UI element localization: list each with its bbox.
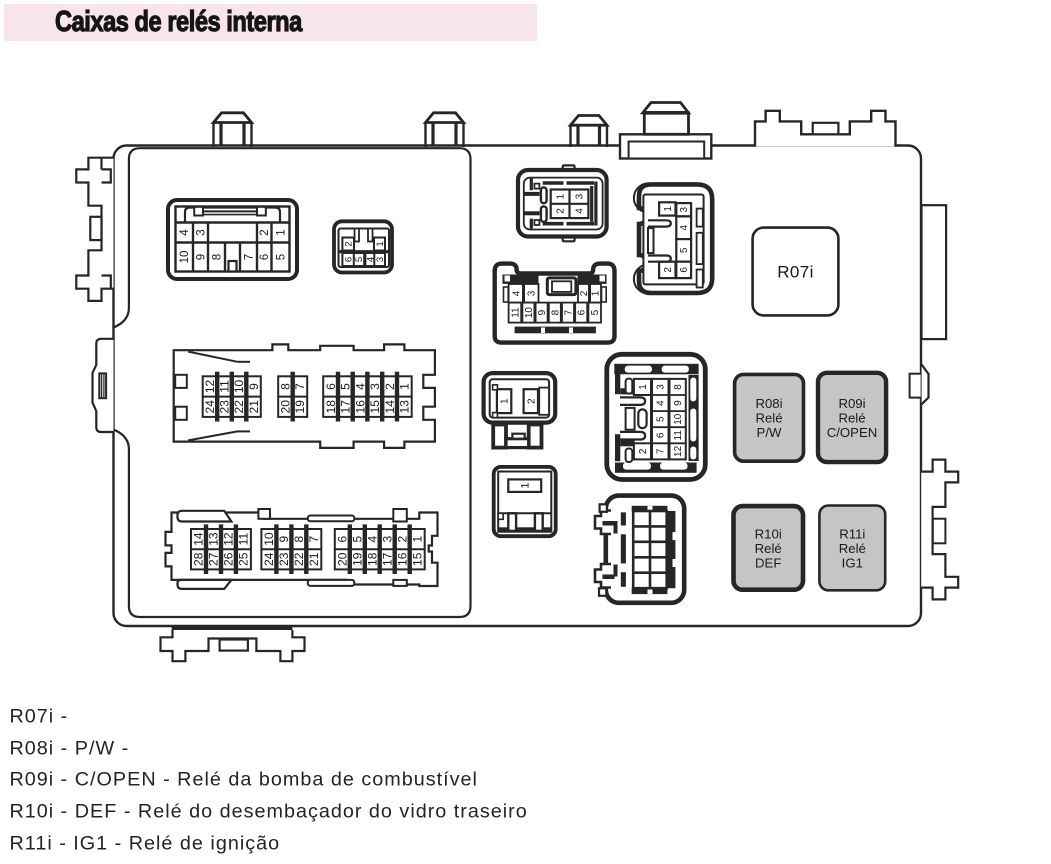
svg-text:6: 6 <box>336 535 350 542</box>
svg-text:7: 7 <box>656 448 667 454</box>
svg-text:24: 24 <box>262 552 276 566</box>
svg-text:2: 2 <box>383 383 397 390</box>
svg-text:1: 1 <box>375 241 386 246</box>
svg-text:6: 6 <box>656 432 667 438</box>
svg-text:16: 16 <box>395 552 409 566</box>
svg-text:26: 26 <box>222 552 236 566</box>
svg-text:3: 3 <box>375 257 386 262</box>
svg-text:9: 9 <box>247 383 261 390</box>
svg-text:5: 5 <box>339 383 353 390</box>
svg-text:23: 23 <box>218 400 232 414</box>
svg-text:2: 2 <box>663 267 674 273</box>
svg-text:Relé: Relé <box>838 410 865 425</box>
svg-text:6: 6 <box>324 383 338 390</box>
svg-text:3: 3 <box>380 535 394 542</box>
svg-text:9: 9 <box>537 309 548 315</box>
svg-text:11: 11 <box>237 533 251 546</box>
svg-text:1: 1 <box>276 229 288 235</box>
svg-text:1: 1 <box>556 193 567 199</box>
svg-text:C/OPEN: C/OPEN <box>827 425 878 440</box>
svg-text:DEF: DEF <box>755 555 781 570</box>
svg-text:1: 1 <box>410 535 424 542</box>
svg-text:19: 19 <box>351 552 365 566</box>
svg-text:IG1: IG1 <box>842 555 863 570</box>
svg-text:R08i - P/W -: R08i - P/W - <box>10 737 130 759</box>
svg-text:19: 19 <box>293 400 307 414</box>
svg-text:1: 1 <box>591 290 602 296</box>
svg-text:R11i: R11i <box>839 527 865 542</box>
svg-text:4: 4 <box>365 535 379 542</box>
svg-text:16: 16 <box>353 400 367 414</box>
svg-text:9: 9 <box>196 254 208 260</box>
svg-text:1: 1 <box>520 483 532 489</box>
svg-text:2: 2 <box>395 535 409 542</box>
svg-text:12: 12 <box>673 445 684 457</box>
svg-text:R09i: R09i <box>838 396 865 411</box>
svg-text:4: 4 <box>575 208 586 214</box>
svg-text:R10i - DEF - Relé do desembaça: R10i - DEF - Relé do desembaçador do vid… <box>10 800 528 822</box>
svg-text:18: 18 <box>324 400 338 414</box>
svg-text:25: 25 <box>237 552 251 566</box>
svg-text:12: 12 <box>203 380 217 394</box>
svg-text:3: 3 <box>196 229 208 235</box>
svg-text:7: 7 <box>307 535 321 542</box>
svg-text:10: 10 <box>673 413 684 425</box>
svg-text:6: 6 <box>259 254 271 260</box>
svg-text:R09i - C/OPEN - Relé da bomba: R09i - C/OPEN - Relé da bomba de combust… <box>10 769 478 791</box>
svg-text:10: 10 <box>262 532 276 546</box>
svg-text:10: 10 <box>232 380 246 394</box>
svg-text:21: 21 <box>307 552 321 566</box>
svg-text:2: 2 <box>259 229 271 235</box>
svg-text:11: 11 <box>673 430 684 441</box>
svg-text:3: 3 <box>656 384 667 390</box>
svg-text:2: 2 <box>579 290 590 296</box>
svg-text:8: 8 <box>292 535 306 542</box>
svg-text:Relé: Relé <box>839 541 866 556</box>
svg-text:27: 27 <box>207 552 221 566</box>
svg-text:6: 6 <box>343 257 354 262</box>
svg-text:28: 28 <box>192 552 206 566</box>
svg-text:14: 14 <box>192 532 206 546</box>
svg-text:13: 13 <box>398 400 412 414</box>
svg-text:2: 2 <box>526 398 537 404</box>
svg-text:R11i - IG1 - Relé de ignição: R11i - IG1 - Relé de ignição <box>10 832 281 854</box>
svg-text:1: 1 <box>500 398 511 404</box>
svg-text:4: 4 <box>512 290 523 296</box>
svg-text:11: 11 <box>218 380 232 393</box>
svg-text:7: 7 <box>564 309 575 315</box>
svg-text:9: 9 <box>277 535 291 542</box>
svg-text:5: 5 <box>656 416 667 422</box>
svg-text:4: 4 <box>179 229 191 236</box>
svg-text:7: 7 <box>293 383 307 390</box>
svg-text:1: 1 <box>663 206 674 212</box>
svg-text:5: 5 <box>354 257 365 262</box>
svg-text:R10i: R10i <box>755 527 782 542</box>
svg-text:2: 2 <box>556 208 567 214</box>
svg-text:6: 6 <box>679 267 690 273</box>
svg-text:1: 1 <box>398 383 412 390</box>
svg-text:2: 2 <box>638 448 649 454</box>
svg-text:13: 13 <box>207 532 221 546</box>
svg-text:23: 23 <box>277 552 291 566</box>
svg-text:Relé: Relé <box>755 541 782 556</box>
svg-text:8: 8 <box>673 384 684 390</box>
svg-text:18: 18 <box>365 552 379 566</box>
svg-text:22: 22 <box>292 552 306 566</box>
svg-text:R07i: R07i <box>777 263 814 282</box>
svg-text:4: 4 <box>679 224 690 230</box>
svg-text:8: 8 <box>550 309 561 315</box>
svg-text:4: 4 <box>656 400 667 406</box>
svg-text:24: 24 <box>203 400 217 414</box>
svg-text:20: 20 <box>336 552 350 566</box>
svg-text:2: 2 <box>343 241 354 246</box>
svg-text:P/W: P/W <box>757 425 782 440</box>
svg-text:20: 20 <box>279 400 293 414</box>
svg-text:15: 15 <box>368 400 382 414</box>
svg-text:10: 10 <box>179 251 191 264</box>
svg-text:9: 9 <box>673 400 684 406</box>
svg-text:7: 7 <box>244 254 256 260</box>
svg-text:10: 10 <box>524 307 535 319</box>
svg-text:5: 5 <box>351 535 365 542</box>
svg-text:3: 3 <box>527 290 538 296</box>
svg-text:3: 3 <box>679 206 690 212</box>
svg-text:21: 21 <box>247 400 261 414</box>
svg-text:8: 8 <box>212 254 224 260</box>
svg-text:4: 4 <box>353 383 367 390</box>
svg-text:1: 1 <box>638 384 649 390</box>
svg-text:8: 8 <box>279 383 293 390</box>
svg-text:5: 5 <box>276 254 288 260</box>
svg-text:17: 17 <box>339 400 353 414</box>
svg-text:3: 3 <box>575 193 586 199</box>
svg-text:6: 6 <box>577 309 588 315</box>
svg-text:11: 11 <box>511 307 522 318</box>
svg-text:5: 5 <box>679 247 690 253</box>
svg-text:12: 12 <box>222 532 236 546</box>
svg-text:Relé: Relé <box>755 410 782 425</box>
svg-text:5: 5 <box>590 309 601 315</box>
svg-text:14: 14 <box>383 400 397 414</box>
svg-text:3: 3 <box>368 383 382 390</box>
svg-text:R08i: R08i <box>755 396 782 411</box>
svg-text:22: 22 <box>232 400 246 414</box>
svg-text:R07i -: R07i - <box>10 705 69 727</box>
svg-text:15: 15 <box>410 552 424 566</box>
svg-text:17: 17 <box>380 552 394 566</box>
